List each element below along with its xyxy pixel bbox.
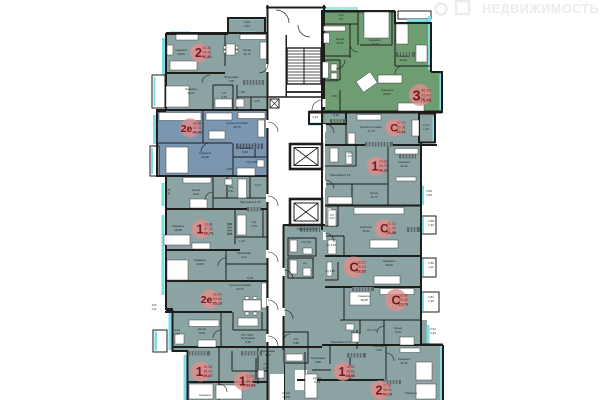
svg-text:Комната: Комната (199, 393, 211, 397)
svg-text:38,55: 38,55 (346, 374, 356, 378)
svg-text:33,89: 33,89 (246, 384, 256, 388)
svg-text:НЕДВИЖИМОСТЬ: НЕДВИЖИМОСТЬ (482, 2, 599, 16)
svg-text:9,11: 9,11 (241, 255, 247, 259)
svg-text:С/У 2,75: С/У 2,75 (367, 329, 377, 332)
svg-text:1: 1 (197, 223, 204, 237)
svg-text:1: 1 (372, 160, 379, 174)
svg-text:17,79: 17,79 (367, 129, 375, 133)
svg-text:23,76: 23,76 (399, 303, 409, 307)
svg-text:1,11: 1,11 (428, 265, 434, 269)
svg-text:11,93: 11,93 (371, 42, 379, 46)
svg-text:3,27: 3,27 (348, 155, 353, 158)
svg-text:1,51: 1,51 (351, 331, 356, 334)
svg-text:11,71: 11,71 (370, 195, 378, 199)
svg-text:6,49: 6,49 (242, 150, 248, 154)
svg-text:10,08: 10,08 (201, 155, 209, 159)
svg-text:34,79: 34,79 (379, 164, 388, 168)
svg-text:75,43: 75,43 (421, 97, 432, 102)
svg-text:1,61: 1,61 (244, 24, 250, 28)
svg-text:3: 3 (413, 89, 421, 105)
svg-text:7,08: 7,08 (228, 79, 234, 83)
svg-text:1,67: 1,67 (174, 332, 180, 336)
svg-text:17,70: 17,70 (397, 121, 406, 125)
svg-text:32,15: 32,15 (247, 379, 256, 383)
svg-text:18,75: 18,75 (233, 125, 241, 129)
svg-text:16,88: 16,88 (174, 228, 182, 232)
svg-text:18,20: 18,20 (357, 260, 366, 264)
svg-text:4,22: 4,22 (265, 353, 271, 357)
svg-text:1,46: 1,46 (226, 167, 232, 171)
svg-text:2е: 2е (201, 294, 213, 306)
svg-text:19,32: 19,32 (387, 222, 396, 226)
svg-text:3,40: 3,40 (330, 217, 335, 220)
svg-text:1,53: 1,53 (426, 193, 432, 197)
svg-text:3,85: 3,85 (293, 341, 299, 345)
svg-text:1,43: 1,43 (312, 115, 318, 119)
svg-text:10,08: 10,08 (282, 395, 290, 399)
svg-text:39,87: 39,87 (203, 374, 213, 378)
svg-text:9,25: 9,25 (193, 192, 199, 196)
svg-text:53,66: 53,66 (213, 297, 222, 301)
svg-text:С/у 3,85: С/у 3,85 (246, 160, 258, 164)
svg-text:1,41: 1,41 (166, 193, 171, 196)
svg-text:1,44: 1,44 (152, 308, 157, 311)
svg-text:4,05: 4,05 (376, 348, 382, 352)
svg-text:13,93: 13,93 (247, 374, 256, 378)
svg-text:11,33: 11,33 (400, 361, 408, 365)
svg-text:1,01: 1,01 (339, 18, 344, 21)
svg-text:35,83: 35,83 (346, 369, 355, 373)
svg-text:27,01: 27,01 (383, 383, 392, 387)
svg-text:1,34: 1,34 (428, 223, 434, 227)
svg-text:14,71: 14,71 (236, 287, 244, 291)
svg-text:Комната: Комната (405, 391, 417, 395)
svg-text:16,88: 16,88 (204, 222, 213, 226)
svg-text:С/у 3,68: С/у 3,68 (325, 270, 335, 273)
svg-text:1,24: 1,24 (430, 331, 436, 335)
svg-text:25,08: 25,08 (387, 231, 397, 235)
svg-text:9,23: 9,23 (314, 380, 320, 384)
svg-text:1,67: 1,67 (254, 99, 260, 103)
svg-text:38,74: 38,74 (204, 232, 214, 236)
svg-text:5,09: 5,09 (247, 276, 253, 280)
svg-text:16,68: 16,68 (399, 293, 408, 297)
svg-text:Прихожая 5,61: Прихожая 5,61 (297, 227, 318, 231)
svg-text:20,84: 20,84 (383, 92, 391, 96)
svg-text:14,12: 14,12 (379, 159, 388, 163)
svg-text:56,56: 56,56 (202, 55, 212, 59)
svg-text:5,92: 5,92 (245, 340, 251, 344)
svg-text:3,00: 3,00 (152, 304, 157, 307)
svg-text:С/у 3,45: С/у 3,45 (326, 244, 336, 247)
svg-text:5,54: 5,54 (199, 331, 205, 335)
svg-text:13,69: 13,69 (196, 262, 204, 266)
svg-text:15,81: 15,81 (177, 52, 185, 56)
svg-text:1,32: 1,32 (239, 90, 245, 94)
svg-text:26,52: 26,52 (357, 270, 367, 274)
svg-text:21,75: 21,75 (387, 226, 396, 230)
svg-text:22,11: 22,11 (397, 130, 406, 134)
svg-text:38,00: 38,00 (204, 369, 213, 373)
svg-text:37,33: 37,33 (204, 227, 213, 231)
svg-text:18,20: 18,20 (385, 263, 393, 267)
svg-text:30,38: 30,38 (203, 46, 212, 50)
svg-text:Прихожая 4,51: Прихожая 4,51 (331, 340, 352, 344)
svg-text:С/у 3,48: С/у 3,48 (301, 241, 311, 244)
svg-text:20,91: 20,91 (397, 125, 406, 129)
svg-text:4,79: 4,79 (251, 224, 257, 228)
svg-text:11,17: 11,17 (243, 52, 251, 56)
svg-text:2: 2 (376, 384, 383, 398)
svg-text:54,96: 54,96 (203, 50, 212, 54)
svg-text:Прихожая 5,13: Прихожая 5,13 (330, 173, 351, 177)
svg-text:48,49: 48,49 (193, 131, 203, 135)
svg-text:2е: 2е (181, 123, 193, 135)
svg-text:1,40: 1,40 (428, 299, 434, 303)
svg-text:6,44: 6,44 (333, 113, 339, 117)
svg-text:С/у 4,10: С/у 4,10 (326, 79, 338, 83)
svg-text:3,67: 3,67 (263, 366, 269, 370)
svg-text:1,86: 1,86 (331, 94, 337, 98)
svg-text:15,32: 15,32 (362, 229, 370, 233)
svg-text:25,18: 25,18 (357, 265, 366, 269)
svg-text:1: 1 (339, 365, 346, 379)
svg-text:5,17: 5,17 (255, 183, 261, 187)
svg-text:1,20: 1,20 (423, 127, 429, 131)
svg-text:28,40: 28,40 (213, 292, 222, 296)
svg-text:1,33: 1,33 (239, 239, 245, 243)
svg-text:1: 1 (239, 375, 246, 389)
svg-text:1: 1 (196, 364, 203, 379)
svg-text:18,68: 18,68 (360, 298, 368, 302)
svg-text:6,80: 6,80 (315, 360, 321, 364)
svg-text:22,36: 22,36 (399, 298, 408, 302)
svg-text:3,33: 3,33 (221, 95, 227, 99)
svg-text:47,01: 47,01 (193, 126, 202, 130)
svg-text:36,32: 36,32 (379, 169, 389, 173)
svg-text:2: 2 (195, 46, 202, 60)
svg-text:50,73: 50,73 (383, 393, 393, 397)
svg-text:6,93: 6,93 (395, 330, 401, 334)
svg-text:10,47: 10,47 (336, 41, 344, 45)
svg-text:28,84: 28,84 (193, 121, 202, 125)
svg-text:14,12: 14,12 (400, 164, 408, 168)
svg-text:15,48: 15,48 (204, 365, 213, 369)
svg-text:14,57: 14,57 (187, 91, 195, 95)
svg-text:3,61: 3,61 (228, 189, 234, 193)
svg-text:48,99: 48,99 (383, 388, 392, 392)
svg-text:55,10: 55,10 (213, 302, 223, 306)
svg-text:Прихожая 5,78: Прихожая 5,78 (240, 200, 261, 204)
svg-text:10,43: 10,43 (399, 58, 407, 62)
svg-text:15,95: 15,95 (346, 365, 355, 369)
